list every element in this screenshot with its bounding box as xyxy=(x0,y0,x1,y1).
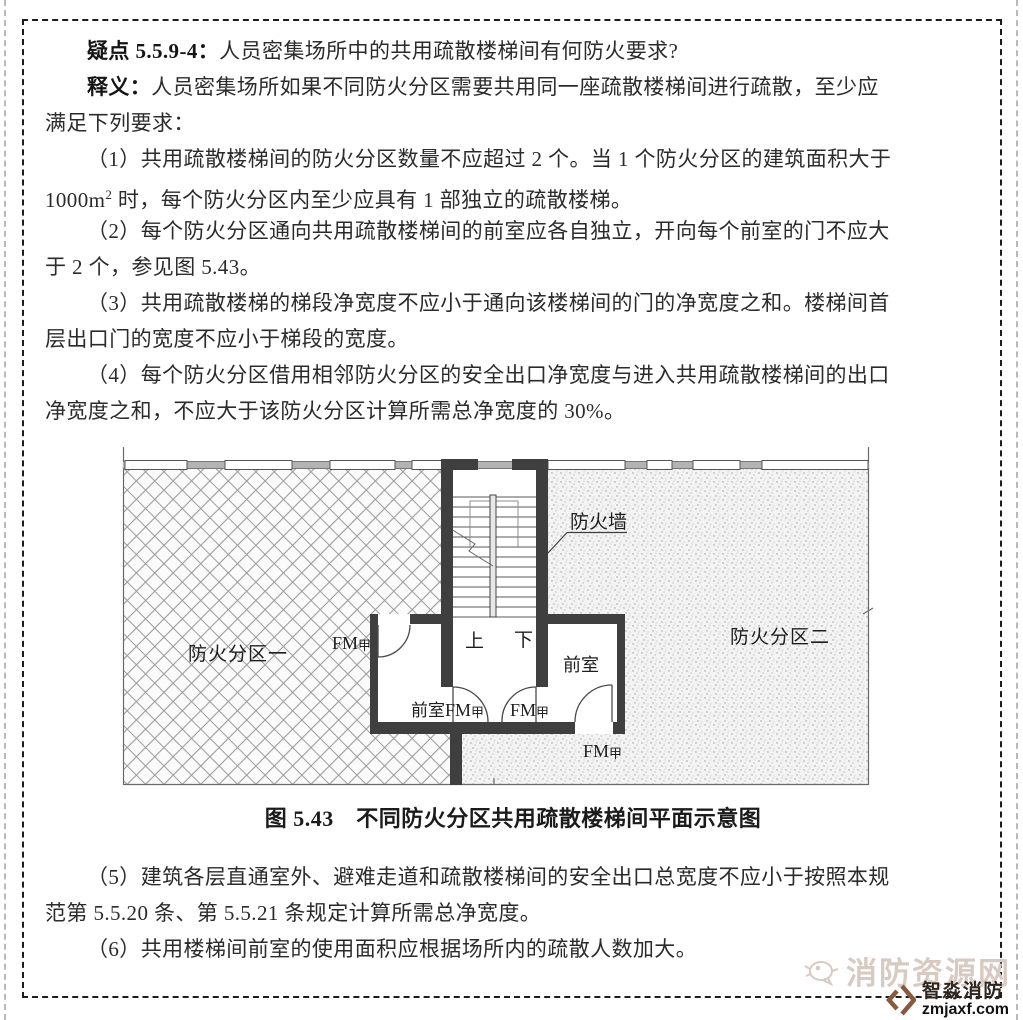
label-door-c: FM甲 xyxy=(510,700,549,720)
item3-line2: 层出口门的宽度不应小于梯段的宽度。 xyxy=(45,327,409,351)
text-line: （4）每个防火分区借用相邻防火分区的安全出口净宽度与进入共用疏散楼梯间的出口 xyxy=(45,357,981,393)
brand-domain: zmjaxf.com xyxy=(922,1001,1009,1018)
item1-line2a: 1000m xyxy=(45,188,105,212)
label-stair-down: 下 xyxy=(514,630,533,651)
paragraph-item-1: （1）共用疏散楼梯间的防火分区数量不应超过 2 个。当 1 个防火分区的建筑面积… xyxy=(45,141,981,213)
door-c-fm: FM xyxy=(510,700,536,720)
label-zone-1: 防火分区一 xyxy=(188,643,288,665)
text-line: 范第 5.5.20 条、第 5.5.21 条规定计算所需总净宽度。 xyxy=(45,895,981,931)
door-b-class: 甲 xyxy=(471,705,484,720)
brand-diamond-icon xyxy=(886,983,916,1017)
text-line: 疑点 5.5.9-4：人员密集场所中的共用疏散楼梯间有何防火要求? xyxy=(45,33,981,69)
definition-text-1: 人员密集场所如果不同防火分区需要共用同一座疏散楼梯间进行疏散，至少应 xyxy=(151,75,879,99)
question-text: 人员密集场所中的共用疏散楼梯间有何防火要求? xyxy=(219,39,678,63)
definition-label: 释义： xyxy=(87,75,151,99)
paragraph-item-3: （3）共用疏散楼梯的梯段净宽度不应小于通向该楼梯间的门的净宽度之和。楼梯间首 层… xyxy=(45,285,981,357)
paragraph-question: 疑点 5.5.9-4：人员密集场所中的共用疏散楼梯间有何防火要求? xyxy=(45,33,981,69)
brand-name: 智淼消防 xyxy=(922,982,1004,1001)
item1-line2b: 时，每个防火分区内至少应具有 1 部独立的疏散楼梯。 xyxy=(112,188,632,212)
anteroom-left-left-wall xyxy=(370,614,378,734)
label-fire-wall: 防火墙 xyxy=(570,511,627,533)
item4-line2: 净宽度之和，不应大于该防火分区计算所需总净宽度的 30%。 xyxy=(45,399,625,423)
door-b-fm: FM xyxy=(445,700,471,720)
paragraph-item-5: （5）建筑各层直通室外、避难走道和疏散楼梯间的安全出口总宽度不应小于按照本规 范… xyxy=(45,859,981,931)
text-line: 1000m2 时，每个防火分区内至少应具有 1 部独立的疏散楼梯。 xyxy=(45,177,981,213)
item2-line1: （2）每个防火分区通向共用疏散楼梯间的前室应各自独立，开向每个前室的门不应大 xyxy=(87,219,890,243)
text-line: （5）建筑各层直通室外、避难走道和疏散楼梯间的安全出口总宽度不应小于按照本规 xyxy=(45,859,981,895)
text-line: 于 2 个，参见图 5.43。 xyxy=(45,249,981,285)
paragraph-item-4: （4）每个防火分区借用相邻防火分区的安全出口净宽度与进入共用疏散楼梯间的出口 净… xyxy=(45,357,981,429)
anteroom-right-top-wall xyxy=(548,614,625,624)
scan-edge-left xyxy=(4,0,6,1020)
definition-text-2: 满足下列要求： xyxy=(45,111,195,135)
door-c-class: 甲 xyxy=(536,705,549,720)
item2-line2: 于 2 个，参见图 5.43。 xyxy=(45,255,261,279)
figure-5-43: 防火墙 防火分区一 防火分区二 上 下 前室 前室 FM甲 FM甲 FM甲 FM… xyxy=(45,435,981,833)
paragraph-definition: 释义：人员密集场所如果不同防火分区需要共用同一座疏散楼梯间进行疏散，至少应 满足… xyxy=(45,69,981,141)
watermark-brand: 智淼消防 zmjaxf.com xyxy=(886,982,1009,1018)
chat-bird-icon xyxy=(804,956,842,986)
scan-edge-right xyxy=(1016,0,1018,1020)
text-line: （1）共用疏散楼梯间的防火分区数量不应超过 2 个。当 1 个防火分区的建筑面积… xyxy=(45,141,981,177)
door-d-class: 甲 xyxy=(609,746,622,761)
item3-line1: （3）共用疏散楼梯的梯段净宽度不应小于通向该楼梯间的门的净宽度之和。楼梯间首 xyxy=(87,291,890,315)
compartment-divider-wall xyxy=(450,734,462,785)
core-bottom-wall xyxy=(370,722,575,734)
figure-caption: 图 5.43 不同防火分区共用疏散楼梯间平面示意图 xyxy=(45,801,981,833)
anteroom-right-right-wall xyxy=(617,614,625,734)
label-anteroom-left: 前室 xyxy=(411,701,445,720)
stair-handrail xyxy=(490,495,496,617)
stairwell-right-wall xyxy=(536,460,548,687)
core-bottom-wall-stub xyxy=(613,722,625,734)
exterior-wall-windows xyxy=(123,459,869,470)
item6-line1: （6）共用楼梯间前室的使用面积应根据场所内的疏散人数加大。 xyxy=(87,937,697,961)
item1-line1: （1）共用疏散楼梯间的防火分区数量不应超过 2 个。当 1 个防火分区的建筑面积… xyxy=(87,147,891,171)
door-a-class: 甲 xyxy=(358,638,371,653)
text-line: （2）每个防火分区通向共用疏散楼梯间的前室应各自独立，开向每个前室的门不应大 xyxy=(45,213,981,249)
item4-line1: （4）每个防火分区借用相邻防火分区的安全出口净宽度与进入共用疏散楼梯间的出口 xyxy=(87,363,890,387)
text-line: （3）共用疏散楼梯的梯段净宽度不应小于通向该楼梯间的门的净宽度之和。楼梯间首 xyxy=(45,285,981,321)
text-line: 层出口门的宽度不应小于梯段的宽度。 xyxy=(45,321,981,357)
text-line: 满足下列要求： xyxy=(45,105,981,141)
item5-line1: （5）建筑各层直通室外、避难走道和疏散楼梯间的安全出口总宽度不应小于按照本规 xyxy=(87,865,890,889)
label-stair-up: 上 xyxy=(465,630,484,652)
text-line: 净宽度之和，不应大于该防火分区计算所需总净宽度的 30%。 xyxy=(45,393,981,429)
paragraph-item-2: （2）每个防火分区通向共用疏散楼梯间的前室应各自独立，开向每个前室的门不应大 于… xyxy=(45,213,981,285)
floor-plan-diagram: 防火墙 防火分区一 防火分区二 上 下 前室 前室 FM甲 FM甲 FM甲 FM… xyxy=(118,435,874,787)
label-zone-2: 防火分区二 xyxy=(730,626,830,648)
stairwell-left-wall xyxy=(441,460,453,687)
text-line: 释义：人员密集场所如果不同防火分区需要共用同一座疏散楼梯间进行疏散，至少应 xyxy=(45,69,981,105)
door-a-fm: FM xyxy=(332,633,358,653)
item5-line2: 范第 5.5.20 条、第 5.5.21 条规定计算所需总净宽度。 xyxy=(45,901,541,925)
question-label: 疑点 5.5.9-4： xyxy=(87,39,219,63)
door-d-fm: FM xyxy=(583,741,609,761)
document-content: 疑点 5.5.9-4：人员密集场所中的共用疏散楼梯间有何防火要求? 释义：人员密… xyxy=(45,33,981,967)
anteroom-left-top-wall xyxy=(410,614,441,624)
label-anteroom-right: 前室 xyxy=(563,655,599,675)
brand-text-block: 智淼消防 zmjaxf.com xyxy=(922,982,1009,1018)
